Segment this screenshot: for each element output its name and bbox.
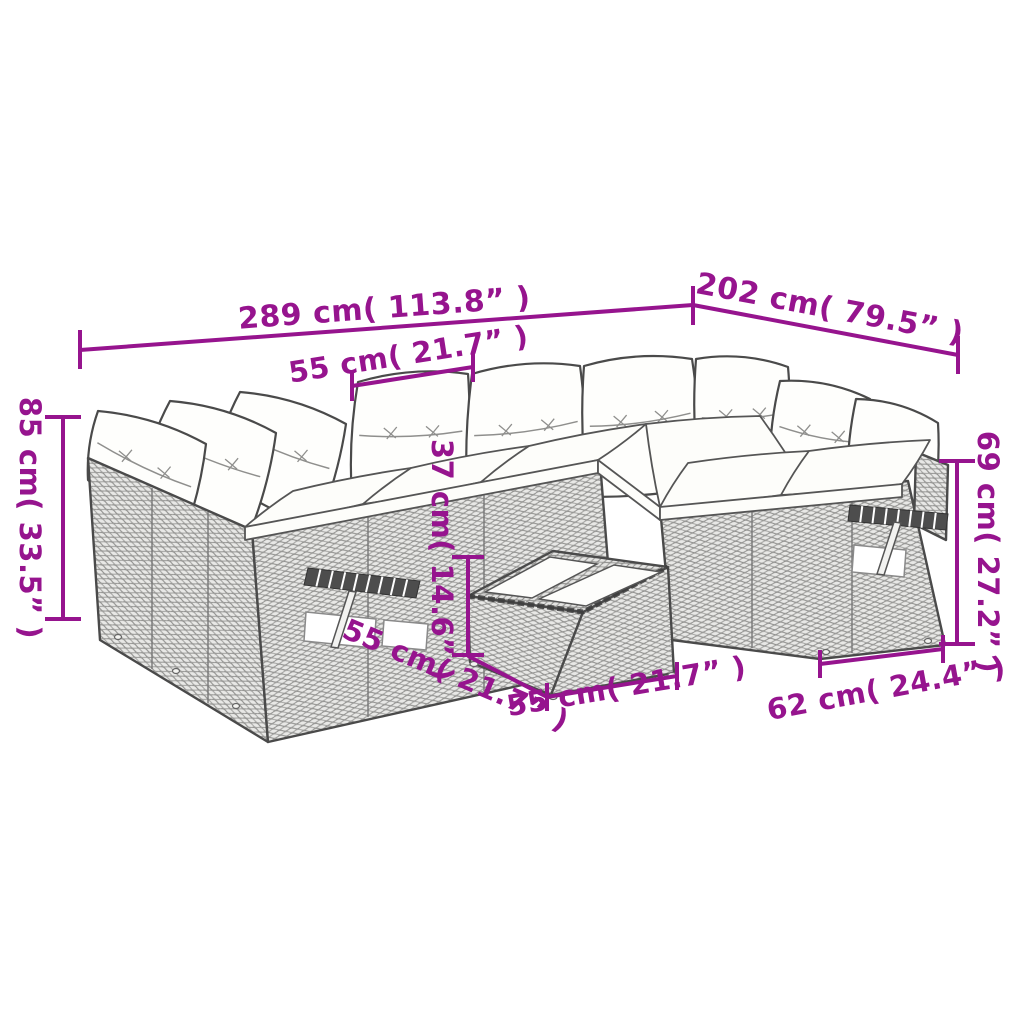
dim-label-total-height: 85 cm( 33.5” )	[13, 397, 47, 639]
dim-label-backrest-height: 69 cm( 27.2” )	[971, 431, 1005, 673]
dim-label-overall-depth: 202 cm( 79.5” )	[693, 266, 966, 351]
dim-label-end-seat-width: 62 cm( 24.4” )	[764, 649, 1008, 727]
product-dimension-diagram: 289 cm( 113.8” ) 202 cm( 79.5” ) 55 cm( …	[0, 0, 1024, 1024]
dim-total-height: 85 cm( 33.5” )	[13, 397, 81, 639]
